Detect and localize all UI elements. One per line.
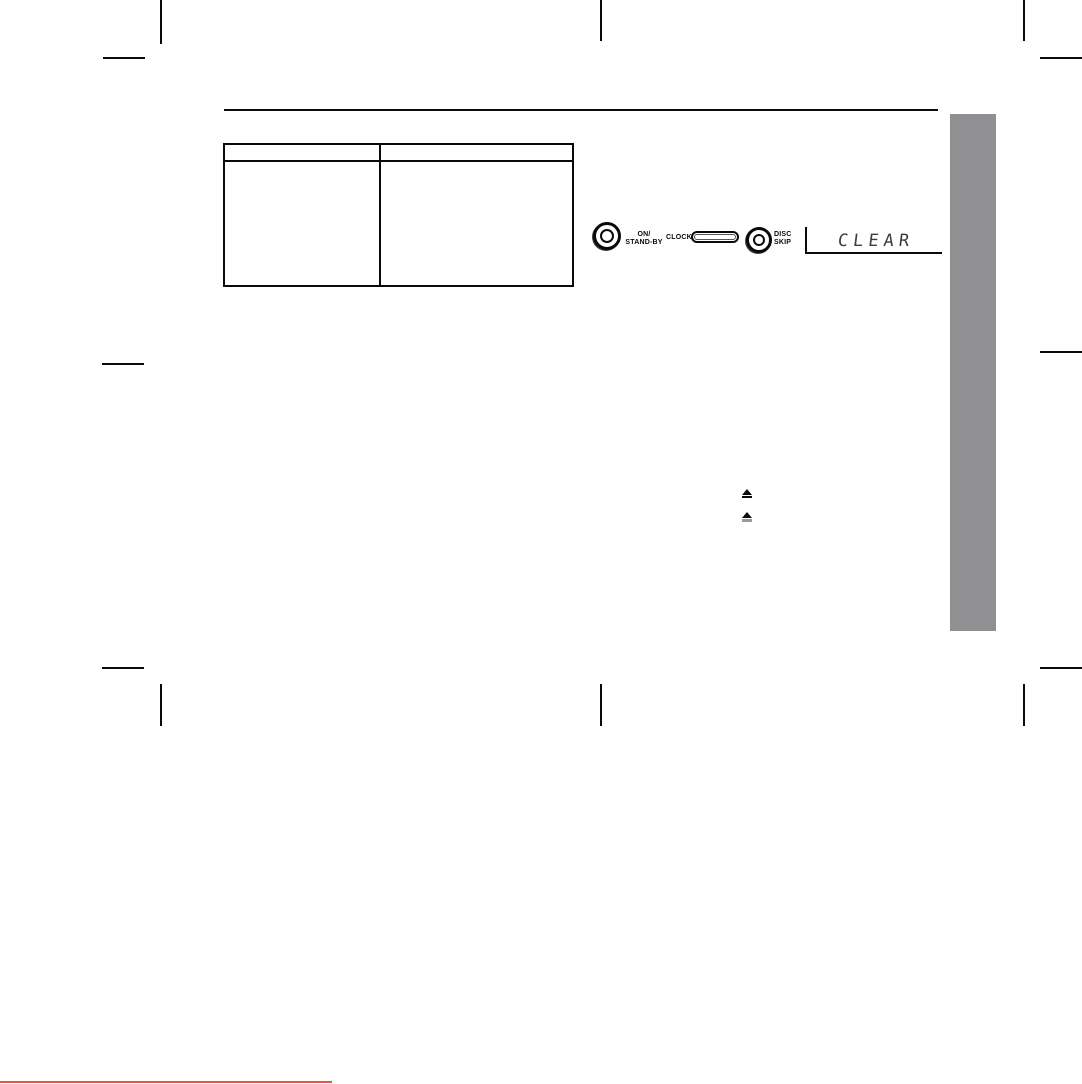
crop-mark-dash-lower-right — [1040, 667, 1082, 669]
table-cell-right — [380, 161, 573, 286]
crop-mark-bottom-vertical-left — [160, 684, 162, 726]
table-header-cell-right — [380, 144, 573, 161]
crop-mark-top-vertical-center — [600, 0, 602, 41]
disc-skip-label-line2: SKIP — [774, 239, 792, 247]
on-standby-label: ON/ STAND-BY — [625, 231, 663, 247]
crop-mark-dash-upper-left — [103, 57, 145, 59]
table-header-row — [224, 144, 573, 161]
crop-mark-dash-upper-right — [1040, 57, 1082, 59]
crop-mark-bottom-vertical-center — [600, 684, 602, 726]
disc-skip-label: DISC SKIP — [774, 231, 792, 247]
reference-table-body — [224, 161, 573, 286]
display-frame-left-edge — [805, 227, 807, 254]
crop-mark-bottom-vertical-right — [1023, 684, 1025, 726]
chapter-tab-sidebar — [950, 114, 996, 631]
manual-page: ON/ STAND-BY CLOCK DISC SKIP CLEAR — [0, 0, 1082, 1084]
on-standby-label-line1: ON/ — [625, 231, 663, 239]
on-standby-label-line2: STAND-BY — [625, 239, 663, 247]
crop-mark-dash-middle-right — [1040, 351, 1082, 353]
on-standby-button-inner-ring — [600, 229, 614, 243]
table-header-cell-left — [224, 144, 380, 161]
crop-mark-dash-middle-left — [102, 363, 144, 365]
eject-icon — [742, 489, 752, 498]
crop-mark-top-vertical-right — [1023, 0, 1025, 41]
section-rule — [224, 109, 938, 111]
table-row — [224, 161, 573, 286]
display-text: CLEAR — [817, 232, 935, 250]
eject-icon-bar — [742, 519, 752, 522]
reference-table — [223, 143, 574, 287]
display-frame-bottom-edge — [805, 252, 942, 254]
clock-label: CLOCK — [666, 234, 692, 242]
eject-icon-triangle — [742, 512, 752, 518]
eject-icon — [742, 512, 752, 522]
eject-icon-bar — [742, 496, 752, 498]
crop-mark-top-vertical-left — [160, 0, 162, 44]
disc-skip-button-inner-ring — [753, 234, 765, 246]
clock-key-icon — [691, 231, 739, 243]
reference-table-header — [224, 144, 573, 161]
crop-mark-dash-lower-left — [102, 667, 144, 669]
clock-key-face — [694, 234, 736, 240]
eject-icon-triangle — [742, 489, 752, 495]
footer-accent-line — [0, 1081, 332, 1083]
disc-skip-label-line1: DISC — [774, 231, 792, 239]
table-cell-left — [224, 161, 380, 286]
